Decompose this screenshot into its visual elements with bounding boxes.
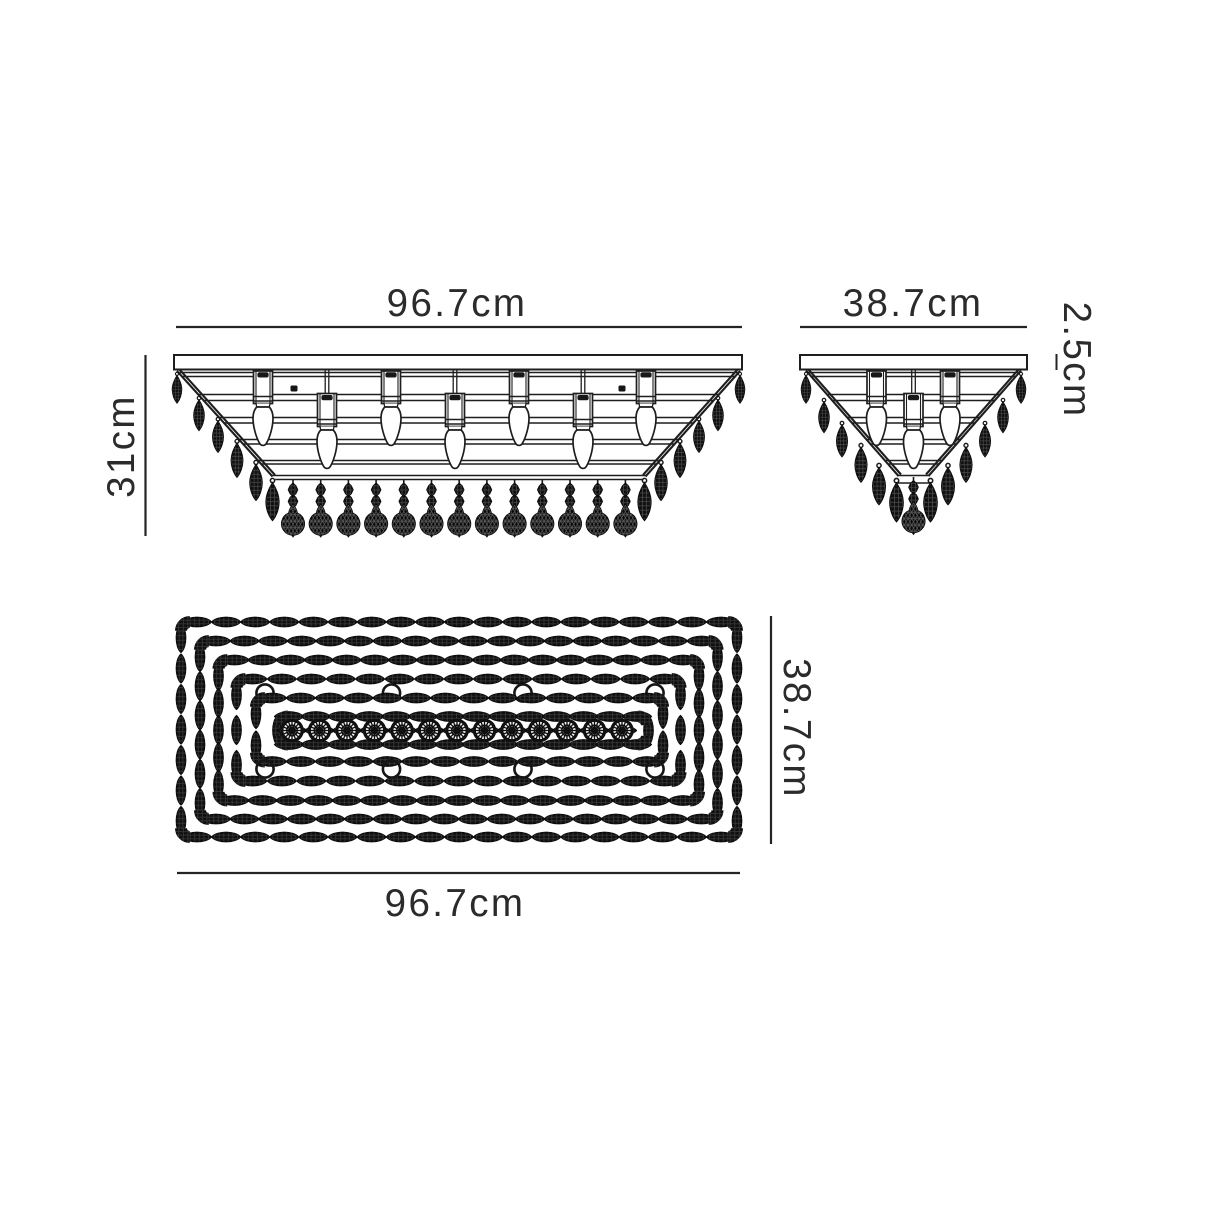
svg-text:96.7cm: 96.7cm xyxy=(387,282,528,325)
svg-text:38.7cm: 38.7cm xyxy=(775,658,818,799)
svg-text:96.7cm: 96.7cm xyxy=(385,882,526,925)
svg-text:38.7cm: 38.7cm xyxy=(843,282,984,325)
svg-text:31cm: 31cm xyxy=(100,394,143,498)
svg-text:2.5cm: 2.5cm xyxy=(1055,302,1098,419)
